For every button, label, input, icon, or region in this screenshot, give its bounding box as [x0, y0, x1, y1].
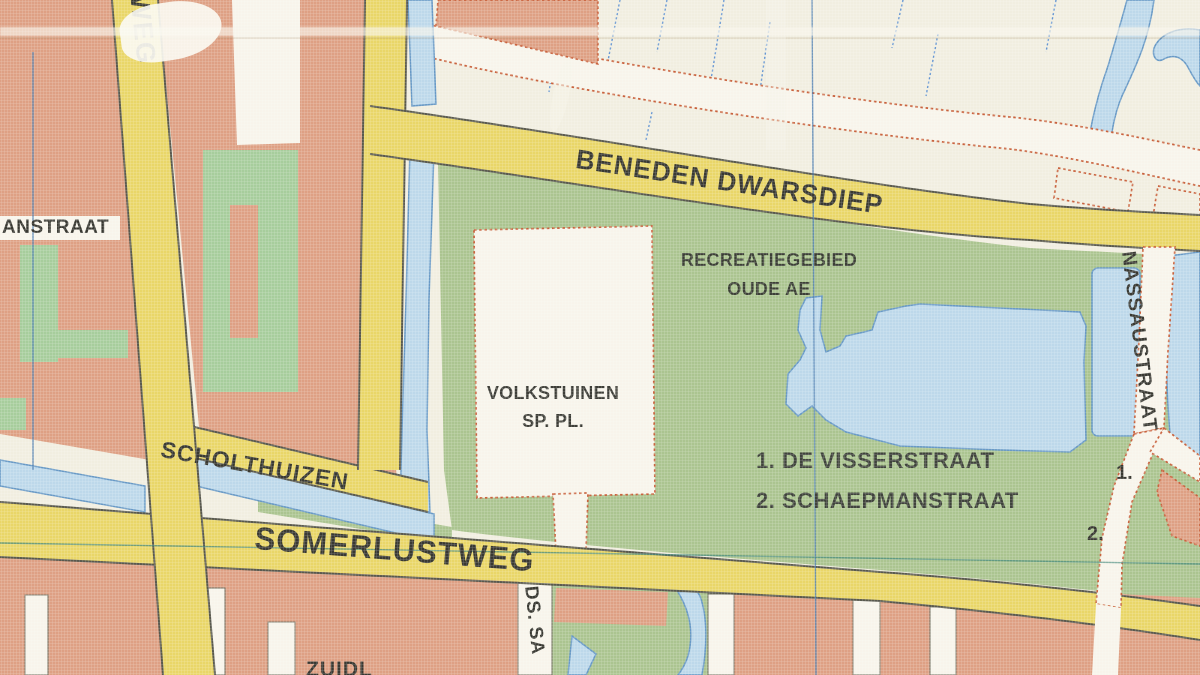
courtyard-inset: [230, 205, 258, 338]
area-label-sp-pl: SP. PL.: [468, 412, 638, 430]
courtyard-small: [0, 398, 26, 430]
channel-top: [408, 0, 436, 106]
fold-crease-vertical: [766, 0, 786, 150]
city-map: NWEG ANSTRAAT BENEDEN DWARSDIEP RECREATI…: [0, 0, 1200, 675]
road-vertical-east: [358, 0, 407, 470]
area-label-recreatiegebied: RECREATIEGEBIED: [659, 251, 879, 269]
street-label-anstraat: ANSTRAAT: [2, 218, 109, 237]
courtyard-t-arm: [20, 330, 128, 358]
canal-bend: [1088, 0, 1154, 146]
volkstuinen-path: [553, 493, 588, 553]
fork-street-south: [1092, 604, 1121, 675]
volkstuinen-area: [474, 226, 655, 498]
street-list-item-1: 1. DE VISSERSTRAAT: [756, 450, 994, 472]
map-geography: [0, 0, 1200, 675]
street-list-item-2: 2. SCHAEPMANSTRAAT: [756, 490, 1019, 512]
area-label-volkstuinen: VOLKSTUINEN: [468, 384, 638, 402]
street-label-zuid: ZUIDL: [306, 659, 373, 675]
canal-north: [1088, 0, 1200, 146]
south-street-6: [853, 600, 880, 675]
south-street-3: [268, 622, 295, 675]
area-label-oude-ae: OUDE AE: [659, 280, 879, 298]
street-marker-1: 1.: [1116, 463, 1133, 483]
south-street-5: [708, 594, 734, 675]
channel-west: [400, 148, 434, 512]
pocket-salmon-inset: [554, 588, 668, 626]
south-street-7: [930, 607, 956, 675]
street-marker-2: 2.: [1087, 524, 1104, 544]
south-street-1: [25, 595, 48, 675]
street-in-block: [232, 0, 300, 145]
cream-block-right1: [1054, 168, 1133, 212]
